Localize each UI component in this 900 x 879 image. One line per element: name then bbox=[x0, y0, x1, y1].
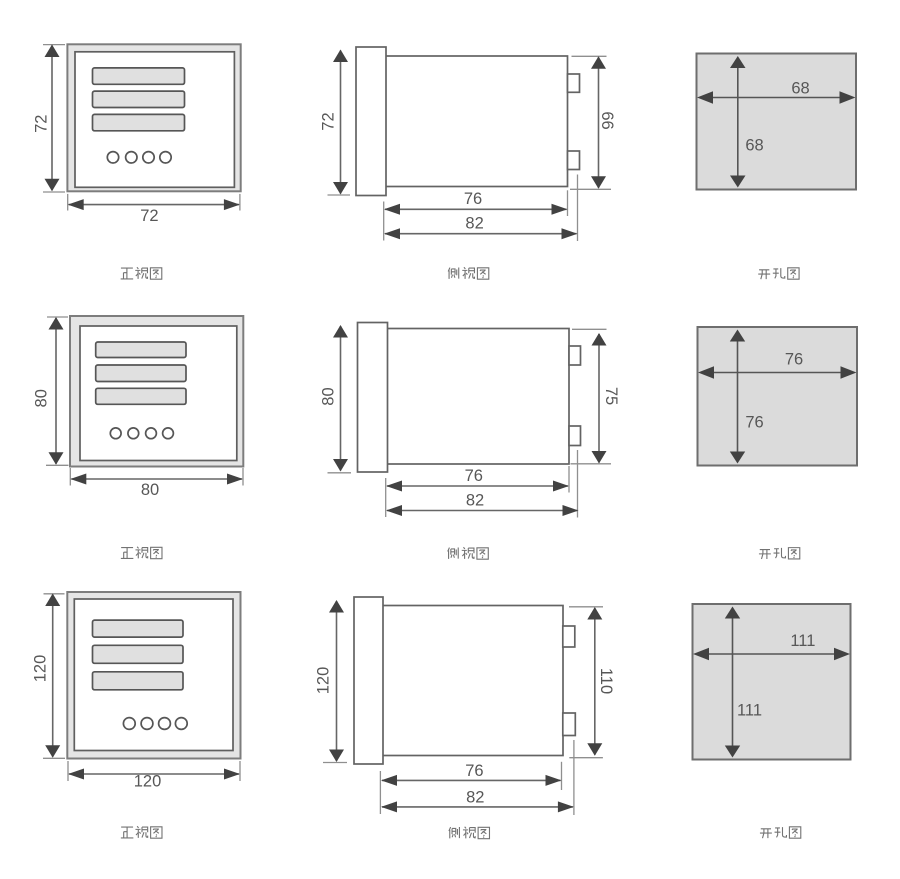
svg-text:120: 120 bbox=[32, 655, 50, 683]
svg-text:66: 66 bbox=[598, 111, 616, 129]
svg-text:110: 110 bbox=[597, 668, 615, 694]
svg-text:111: 111 bbox=[737, 701, 762, 719]
svg-text:82: 82 bbox=[466, 788, 484, 806]
svg-text:82: 82 bbox=[466, 491, 484, 509]
svg-text:80: 80 bbox=[33, 389, 51, 407]
svg-text:72: 72 bbox=[140, 207, 158, 225]
svg-text:120: 120 bbox=[315, 667, 333, 695]
svg-text:76: 76 bbox=[785, 351, 803, 369]
svg-text:111: 111 bbox=[790, 632, 815, 650]
svg-text:68: 68 bbox=[791, 80, 809, 98]
svg-text:72: 72 bbox=[320, 112, 338, 130]
svg-text:120: 120 bbox=[134, 773, 162, 791]
svg-text:68: 68 bbox=[745, 137, 763, 155]
svg-text:76: 76 bbox=[465, 762, 483, 780]
svg-text:76: 76 bbox=[465, 467, 483, 485]
svg-text:80: 80 bbox=[320, 387, 338, 405]
svg-text:82: 82 bbox=[465, 215, 483, 233]
svg-text:80: 80 bbox=[141, 481, 159, 499]
svg-text:75: 75 bbox=[602, 387, 620, 405]
svg-text:72: 72 bbox=[32, 115, 50, 133]
svg-text:76: 76 bbox=[745, 414, 763, 432]
svg-text:76: 76 bbox=[464, 190, 482, 208]
